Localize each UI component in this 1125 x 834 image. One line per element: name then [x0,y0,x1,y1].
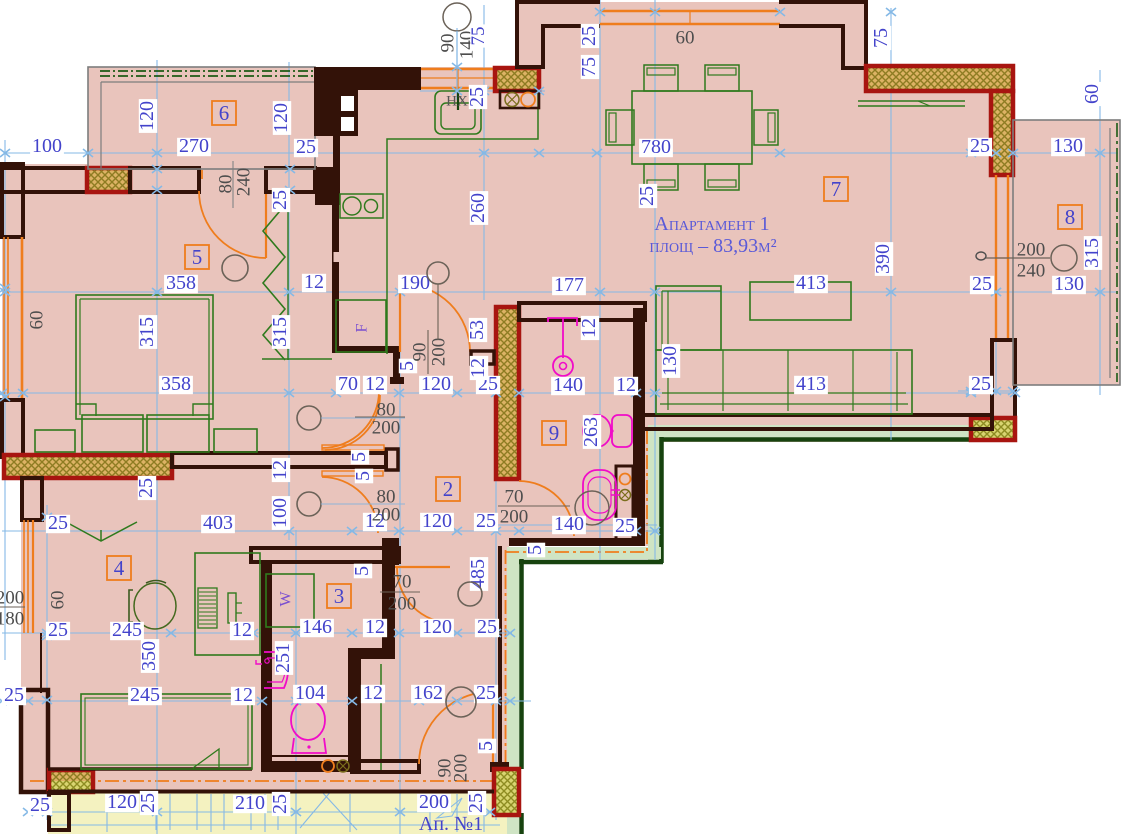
svg-text:12: 12 [616,374,636,396]
svg-text:60: 60 [48,591,69,610]
svg-text:12: 12 [363,682,383,704]
svg-text:90: 90 [410,343,431,362]
svg-text:104: 104 [295,682,325,704]
svg-text:240: 240 [1017,261,1046,282]
svg-text:25: 25 [636,186,658,206]
svg-text:358: 358 [161,373,191,395]
svg-text:3: 3 [334,584,345,608]
svg-text:F: F [354,323,371,332]
svg-text:12: 12 [365,616,385,638]
svg-text:25: 25 [971,373,991,395]
svg-text:200: 200 [0,588,24,609]
svg-text:245: 245 [130,684,160,706]
svg-text:25: 25 [578,26,600,46]
svg-text:9: 9 [549,421,560,445]
svg-text:25: 25 [137,793,159,813]
svg-text:НХ: НХ [446,93,468,109]
svg-text:390: 390 [872,244,894,274]
svg-text:12: 12 [304,271,324,293]
svg-text:25: 25 [48,619,68,641]
svg-text:5: 5 [348,452,370,462]
svg-text:200: 200 [372,505,401,526]
svg-text:12: 12 [467,358,489,378]
svg-text:25: 25 [465,793,487,813]
svg-text:177: 177 [554,274,584,296]
svg-text:200: 200 [388,594,417,615]
svg-text:12: 12 [578,318,600,338]
svg-text:12: 12 [269,460,291,480]
svg-text:180: 180 [0,609,24,630]
svg-text:315: 315 [269,317,291,347]
svg-text:70: 70 [338,373,358,395]
svg-text:780: 780 [641,136,671,158]
svg-text:210: 210 [235,792,265,814]
svg-text:100: 100 [32,135,62,157]
svg-text:75: 75 [578,57,600,77]
svg-text:120: 120 [422,510,452,532]
svg-text:146: 146 [302,616,332,638]
svg-text:2: 2 [443,477,454,501]
svg-text:120: 120 [107,791,137,813]
svg-text:5: 5 [524,545,546,555]
svg-text:75: 75 [870,28,892,48]
svg-text:Апартамент 1: Апартамент 1 [654,213,769,235]
svg-text:413: 413 [796,272,826,294]
svg-text:12: 12 [233,684,253,706]
svg-text:70: 70 [505,487,524,508]
svg-text:5: 5 [192,245,203,269]
svg-text:12: 12 [232,619,252,641]
svg-text:25: 25 [296,136,316,158]
svg-text:25: 25 [477,616,497,638]
svg-text:25: 25 [476,682,496,704]
svg-text:53: 53 [466,320,488,340]
svg-text:W: W [278,591,295,607]
svg-text:площ – 83,93м²: площ – 83,93м² [649,235,776,257]
svg-text:25: 25 [466,87,488,107]
svg-text:120: 120 [270,103,292,133]
svg-text:25: 25 [269,794,291,814]
svg-text:190: 190 [400,272,430,294]
svg-text:5: 5 [475,741,497,751]
svg-text:200: 200 [419,791,449,813]
svg-text:245: 245 [112,619,142,641]
svg-text:12: 12 [365,373,385,395]
svg-text:25: 25 [972,273,992,295]
svg-text:5: 5 [351,566,373,576]
svg-text:60: 60 [27,311,48,330]
svg-text:5: 5 [352,471,374,481]
svg-text:358: 358 [166,272,196,294]
svg-text:25: 25 [476,510,496,532]
svg-text:200: 200 [429,338,450,367]
svg-text:200: 200 [1017,240,1046,261]
svg-text:162: 162 [413,682,443,704]
svg-text:140: 140 [553,374,583,396]
svg-text:25: 25 [4,684,24,706]
svg-text:403: 403 [203,512,233,534]
svg-text:130: 130 [1054,273,1084,295]
svg-text:240: 240 [234,168,255,197]
svg-text:60: 60 [1081,84,1103,104]
svg-text:260: 260 [467,193,489,223]
svg-text:315: 315 [136,317,158,347]
svg-text:25: 25 [269,190,291,210]
svg-text:25: 25 [48,512,68,534]
svg-text:90: 90 [438,34,459,53]
svg-text:120: 120 [422,616,452,638]
svg-text:7: 7 [831,177,842,201]
svg-text:270: 270 [179,135,209,157]
svg-text:200: 200 [451,754,472,783]
svg-text:6: 6 [219,101,230,125]
svg-text:75: 75 [468,27,489,46]
svg-text:5: 5 [396,361,418,371]
svg-text:120: 120 [421,373,451,395]
svg-text:25: 25 [615,515,635,537]
svg-text:60: 60 [676,28,695,49]
svg-text:25: 25 [135,478,157,498]
svg-text:200: 200 [372,418,401,439]
svg-text:140: 140 [554,513,584,535]
svg-text:Ап. №1: Ап. №1 [419,813,483,834]
svg-text:25: 25 [30,794,50,816]
svg-text:25: 25 [970,135,990,157]
svg-text:130: 130 [659,346,681,376]
svg-text:350: 350 [138,641,160,671]
svg-text:263: 263 [580,417,602,447]
svg-text:70: 70 [393,572,412,593]
svg-text:4: 4 [114,556,125,580]
svg-text:251: 251 [272,643,294,673]
svg-text:413: 413 [796,373,826,395]
svg-text:130: 130 [1053,135,1083,157]
svg-text:120: 120 [136,101,158,131]
svg-text:100: 100 [269,498,291,528]
svg-text:200: 200 [500,507,529,528]
svg-text:8: 8 [1065,205,1076,229]
svg-text:315: 315 [1081,238,1103,268]
